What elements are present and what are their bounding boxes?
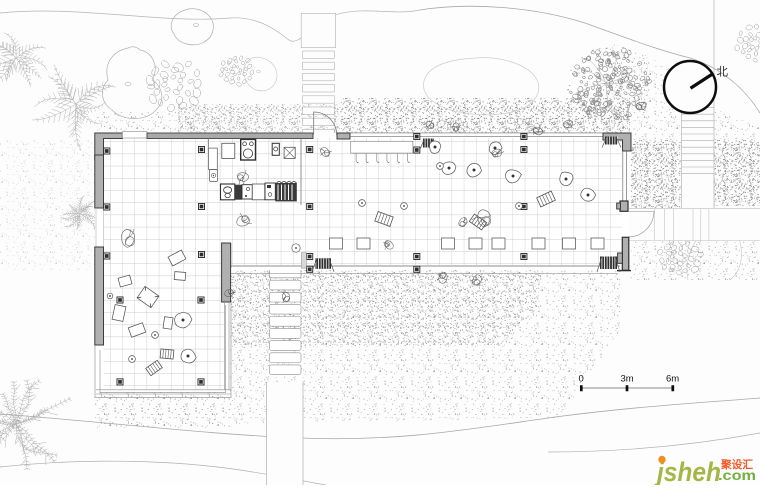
svg-text:3m: 3m bbox=[621, 373, 634, 384]
svg-text:6m: 6m bbox=[666, 373, 679, 384]
svg-text:北: 北 bbox=[717, 66, 729, 79]
svg-text:0: 0 bbox=[579, 373, 584, 384]
svg-text:聚设汇: 聚设汇 bbox=[720, 458, 754, 471]
